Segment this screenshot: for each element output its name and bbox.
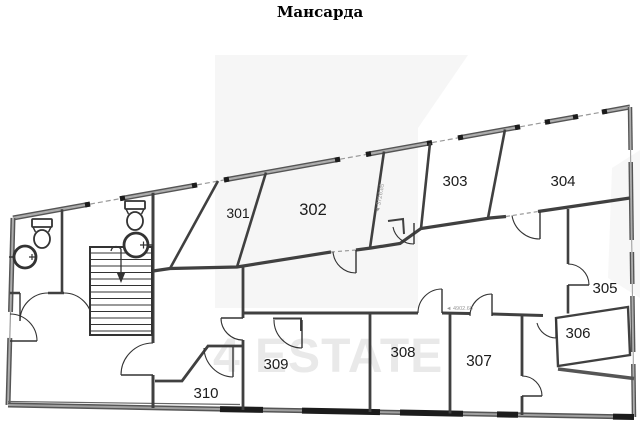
door-arc-308: [418, 289, 442, 313]
wall-bottomband-north: [243, 313, 543, 316]
floorplan-canvas: 4 ESTATE: [0, 0, 640, 425]
door-arc-305: [568, 264, 589, 285]
wall-right: [630, 107, 634, 417]
room-label-301: 301: [226, 205, 250, 221]
door-arc-stairhall: [121, 343, 153, 375]
wall-bottom: [8, 402, 634, 418]
door-arc-304: [512, 216, 540, 240]
door-arc-306: [537, 323, 556, 338]
room-label-305: 305: [592, 280, 617, 297]
toilet-icon: [32, 219, 52, 248]
room-label-308: 308: [390, 344, 415, 361]
window-left-glass: [10, 312, 11, 338]
room-label-307: 307: [466, 353, 492, 370]
wall-303-west: [421, 143, 430, 229]
door-arc-bathroom2: [64, 293, 92, 321]
dimension-307-wall: ◄ 4902.60: [446, 306, 473, 312]
room-label-306: 306: [565, 325, 590, 342]
room-label-303: 303: [442, 173, 467, 190]
wall-left: [8, 218, 13, 405]
wall-306-south: [558, 369, 634, 379]
watermark-hexagon: [608, 150, 640, 298]
door-304-threshold: [506, 212, 538, 217]
page-title: Мансарда: [277, 3, 364, 21]
floorplan-svg: 4 ESTATE: [0, 0, 640, 425]
room-label-302: 302: [299, 201, 327, 219]
wall-301-west: [170, 181, 218, 269]
toilet-icon: [125, 201, 145, 230]
room-label-309: 309: [263, 356, 288, 373]
watermark-panel: [215, 55, 418, 308]
door-arc-bathroom1: [20, 293, 48, 321]
room-label-310: 310: [193, 385, 218, 402]
door-arc-balcony: [10, 314, 37, 341]
staircase: [90, 247, 152, 335]
door-arc-corridor: [470, 294, 492, 316]
wall-303-304-divider: [488, 130, 505, 219]
door-arc-307: [522, 376, 542, 396]
room-label-304: 304: [550, 173, 575, 190]
watermark-wedge: [418, 55, 468, 128]
